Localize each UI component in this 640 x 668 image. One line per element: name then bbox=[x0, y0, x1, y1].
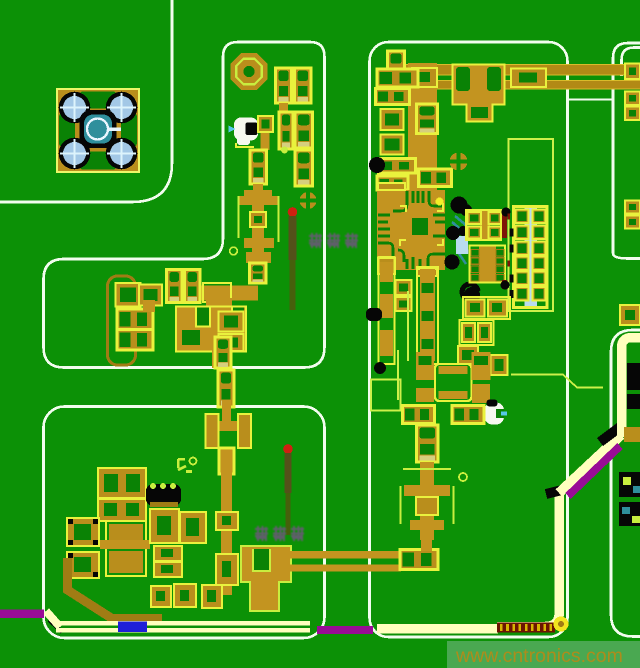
svg-text:www.cntronics.com: www.cntronics.com bbox=[455, 645, 623, 667]
